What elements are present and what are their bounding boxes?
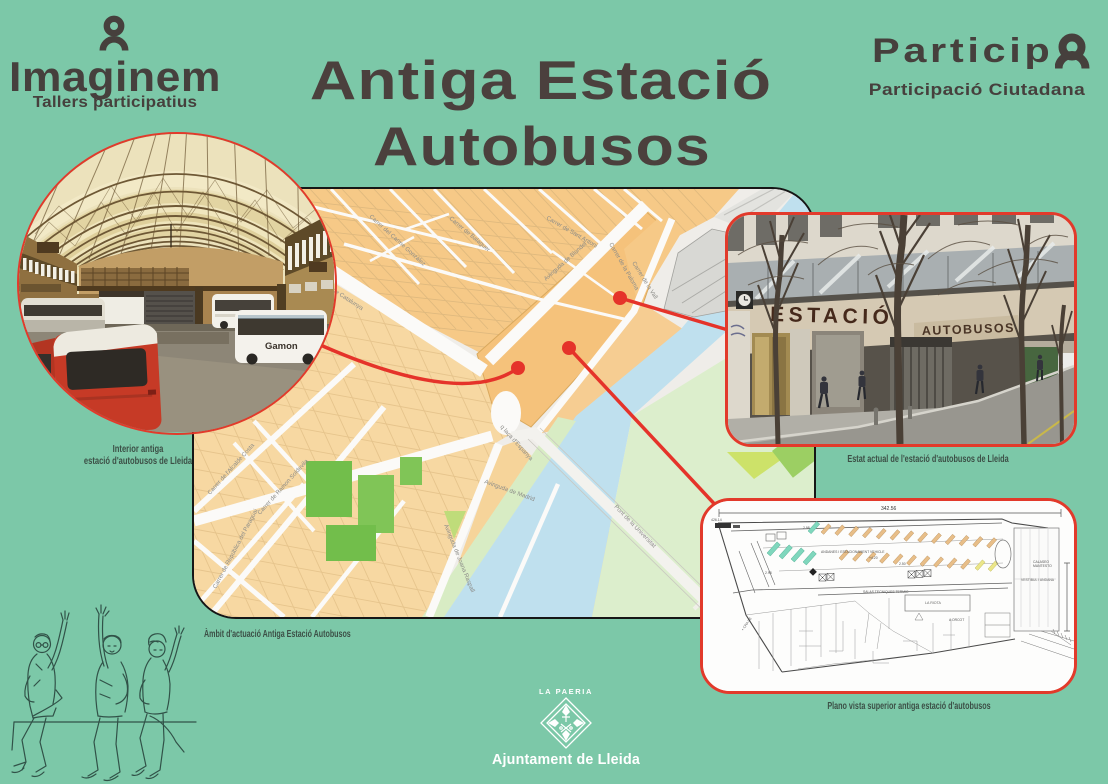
svg-text:426.14: 426.14 — [711, 518, 722, 522]
svg-text:MANTESTO: MANTESTO — [1033, 564, 1052, 568]
svg-text:+4.20: +4.20 — [869, 556, 878, 560]
svg-text:SALAS TECNIQUES TERMIC: SALAS TECNIQUES TERMIC — [863, 590, 909, 594]
svg-text:ANDANES I ESTACIONAMENT VEHICL: ANDANES I ESTACIONAMENT VEHICLE — [821, 550, 885, 554]
svg-text:A ORCOT: A ORCOT — [949, 618, 964, 622]
svg-text:342.56: 342.56 — [881, 506, 897, 512]
svg-text:2.98: 2.98 — [803, 526, 810, 530]
svg-text:2.50: 2.50 — [899, 562, 906, 566]
svg-text:LA RIOTA: LA RIOTA — [925, 601, 942, 605]
svg-text:Gamon: Gamon — [265, 341, 298, 352]
svg-text:VESTIBUL I ANDANA: VESTIBUL I ANDANA — [1021, 578, 1055, 582]
svg-text:ESTACIÓ: ESTACIÓ — [770, 302, 894, 329]
svg-text:2.98: 2.98 — [765, 571, 772, 575]
